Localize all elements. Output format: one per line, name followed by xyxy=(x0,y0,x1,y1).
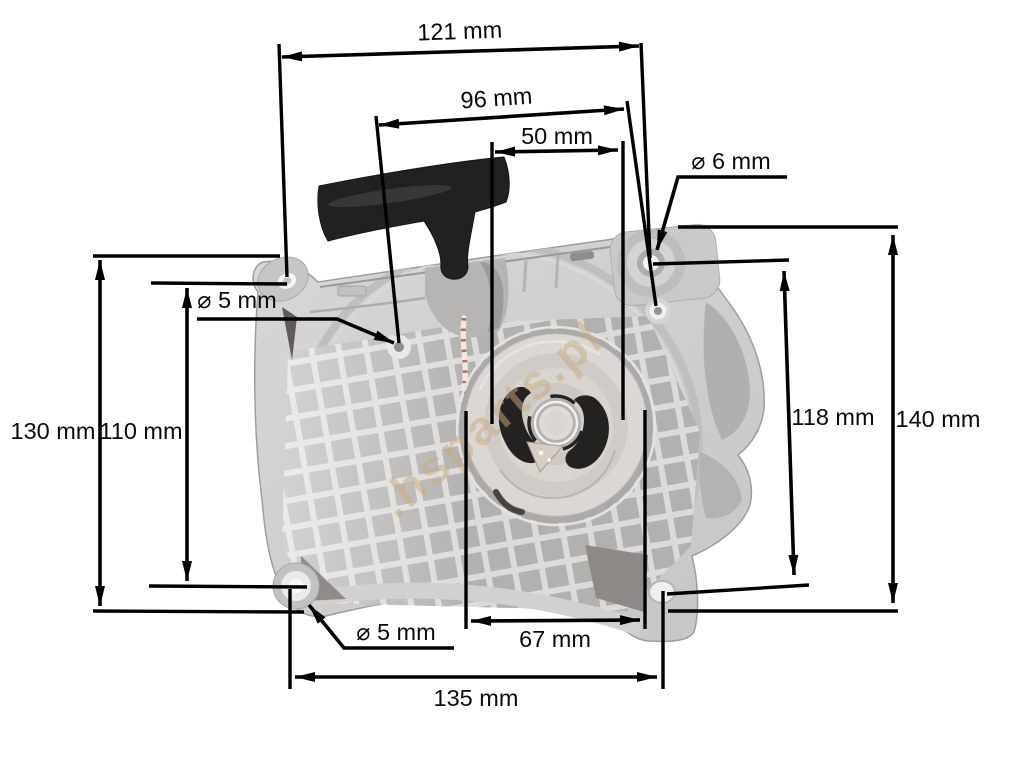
dim-140mm-label: 140 mm xyxy=(896,406,981,432)
dim-135mm-label: 135 mm xyxy=(434,685,519,711)
product-dimension-diagram: .hsparts.pl 121 mm 96 mm 50 mm 130 mm xyxy=(0,0,1024,768)
callout-dia-5mm-top-label: ⌀ 5 mm xyxy=(197,287,276,313)
dim-110mm-label: 110 mm xyxy=(99,418,182,444)
dim-50mm-label: 50 mm xyxy=(521,123,593,149)
callout-dia-6mm-label: ⌀ 6 mm xyxy=(691,148,770,174)
dim-118mm-label: 118 mm xyxy=(791,404,874,430)
callout-dia-5mm-bottom-label: ⌀ 5 mm xyxy=(356,619,435,645)
dim-130mm-label: 130 mm xyxy=(11,418,96,444)
dim-96mm-label: 96 mm xyxy=(460,83,533,114)
dim-67mm-label: 67 mm xyxy=(519,626,591,652)
small-hole-top-right xyxy=(645,298,671,324)
dim-121mm-label: 121 mm xyxy=(417,17,503,46)
